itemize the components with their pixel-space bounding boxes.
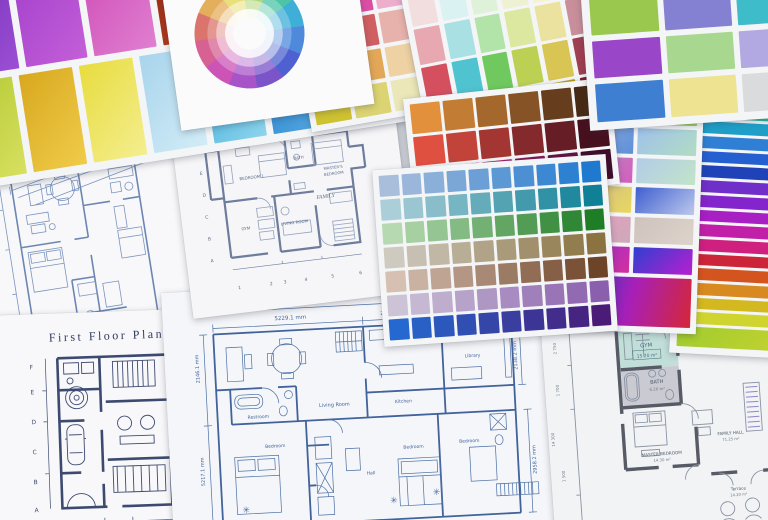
swatch-cell: [542, 40, 574, 81]
swatch-cell: [595, 80, 665, 122]
svg-text:1 500: 1 500: [561, 470, 567, 482]
svg-text:Bedroom: Bedroom: [403, 444, 424, 451]
svg-text:2138.2 mm: 2138.2 mm: [512, 341, 520, 370]
swatch-cell: [432, 291, 453, 313]
swatch-cell: [406, 245, 427, 267]
svg-text:Hall: Hall: [367, 470, 376, 476]
swatch-cell: [442, 98, 475, 131]
swatch-cell: [454, 290, 475, 312]
swatch-cell: [539, 211, 560, 233]
swatch-cell: [475, 264, 496, 286]
furniture: [225, 322, 539, 520]
swatch-cell: [18, 67, 86, 172]
swatch-cell: [436, 0, 468, 21]
swatch-cell: [515, 189, 536, 211]
swatch-cell: [520, 261, 541, 283]
swatch-cell: [512, 46, 544, 87]
svg-text:2146.1 mm: 2146.1 mm: [194, 354, 202, 383]
swatch-cell: [466, 0, 498, 15]
swatch-cell: [79, 58, 147, 163]
piano-strings: [745, 386, 760, 427]
swatch-cell: [411, 317, 432, 339]
swatch-cell: [665, 31, 735, 73]
swatch-cell: [410, 101, 443, 134]
swatch-cell: [518, 237, 539, 259]
svg-text:D: D: [31, 419, 36, 426]
solid-grid: [589, 0, 768, 122]
solid-grid-card-topright: [580, 0, 768, 131]
swatch-cell: [404, 221, 425, 243]
swatch-cell: [481, 51, 513, 92]
svg-text:5217.1 mm: 5217.1 mm: [200, 457, 208, 486]
furniture: [62, 360, 166, 508]
swatch-cell: [401, 173, 422, 195]
swatch-cell: [536, 164, 557, 186]
svg-text:✳: ✳: [433, 488, 442, 498]
swatch-cell: [635, 188, 695, 216]
swatch-cell: [566, 282, 587, 304]
swatch-cell: [522, 285, 543, 307]
swatch-cell: [474, 13, 506, 54]
swatch-cell: [433, 315, 454, 337]
svg-text:3: 3: [283, 279, 287, 285]
svg-text:5229.1 mm: 5229.1 mm: [274, 315, 306, 323]
svg-text:FAMILY HALL: FAMILY HALL: [717, 429, 744, 436]
svg-text:FAMILY: FAMILY: [315, 193, 336, 201]
dimension-line: [232, 251, 361, 270]
svg-text:B: B: [33, 479, 37, 486]
svg-text:A: A: [34, 507, 39, 514]
swatch-cell: [592, 36, 662, 78]
swatch-cell: [496, 239, 517, 261]
grid-numbers: 1 2 3 4 5 6: [238, 270, 363, 291]
swatch-row: [592, 26, 768, 79]
swatch-cell: [560, 186, 581, 208]
swatch-cell: [492, 191, 513, 213]
swatch-cell: [501, 310, 522, 332]
svg-text:✳: ✳: [390, 496, 399, 506]
swatch-cell: [387, 294, 408, 316]
swatch-cell: [468, 168, 489, 190]
svg-text:14.30 m²: 14.30 m²: [653, 457, 671, 463]
swatch-cell: [739, 26, 768, 68]
swatch-cell: [409, 293, 430, 315]
svg-text:C: C: [32, 449, 36, 456]
svg-text:6: 6: [359, 270, 363, 276]
svg-text:BEDROOM 1: BEDROOM 1: [239, 173, 265, 181]
swatch-cell: [449, 218, 470, 240]
swatch-cell: [499, 286, 520, 308]
svg-text:LIVING ROOM: LIVING ROOM: [281, 218, 309, 226]
swatch-cell: [425, 195, 446, 217]
swatch-cell: [413, 134, 446, 167]
color-wheel-wrap: [187, 0, 311, 96]
swatch-cell: [504, 7, 536, 48]
svg-text:Bedroom: Bedroom: [459, 438, 480, 445]
swatch-cell: [544, 120, 577, 153]
room-labels: GYM 15.20 m² BATH 6.20 m² MASTER BEDROOM…: [544, 330, 751, 520]
svg-text:D: D: [202, 192, 207, 198]
swatch-cell: [427, 219, 448, 241]
svg-text:B: B: [208, 236, 212, 242]
swatch-cell: [491, 167, 512, 189]
swatch-cell: [428, 243, 449, 265]
swatch-cell: [633, 247, 693, 275]
svg-text:BATH: BATH: [293, 154, 304, 160]
swatch-cell: [584, 208, 605, 230]
swatch-cell: [517, 213, 538, 235]
svg-text:F: F: [29, 364, 33, 371]
swatch-cell: [389, 318, 410, 340]
swatch-cell: [523, 309, 544, 331]
swatch-cell: [742, 70, 768, 112]
swatch-cell: [637, 128, 697, 156]
swatch-cell: [662, 0, 732, 30]
swatch-cell: [384, 246, 405, 268]
swatch-cell: [380, 199, 401, 221]
swatch-cell: [561, 210, 582, 232]
swatch-cell: [0, 0, 19, 78]
swatch-cell: [508, 91, 541, 124]
svg-text:14 300: 14 300: [550, 432, 556, 447]
swatch-cell: [406, 0, 438, 26]
plant-symbols: ✳✳✳: [242, 488, 442, 516]
swatch-cell: [736, 0, 768, 25]
swatch-cell: [563, 234, 584, 256]
swatch-cell: [494, 215, 515, 237]
svg-text:2 750: 2 750: [552, 342, 558, 354]
swatch-cell: [565, 258, 586, 280]
svg-text:BATH: BATH: [650, 379, 664, 386]
main-color-grid: [379, 160, 612, 340]
swatch-cell: [544, 283, 565, 305]
swatch-cell: [634, 217, 694, 245]
svg-text:E: E: [30, 389, 34, 396]
svg-text:1: 1: [238, 285, 242, 291]
swatch-cell: [582, 184, 603, 206]
swatch-cell: [479, 127, 512, 160]
swatch-cell: [511, 123, 544, 156]
svg-text:71.25 m²: 71.25 m²: [722, 436, 740, 442]
svg-text:BEDROOM: BEDROOM: [324, 170, 344, 177]
swatch-cell: [408, 269, 429, 291]
swatch-cell: [591, 304, 612, 326]
swatch-cell: [568, 306, 589, 328]
swatch-cell: [587, 256, 608, 278]
photo-floorplans-and-color-swatches: 4753 mm First Floor Plan: [0, 0, 768, 520]
swatch-cell: [382, 222, 403, 244]
svg-text:✳: ✳: [242, 506, 251, 516]
svg-text:Bedroom: Bedroom: [265, 443, 286, 450]
swatch-cell: [586, 232, 607, 254]
swatch-cell: [475, 94, 508, 127]
swatch-cell: [453, 266, 474, 288]
swatch-cell: [451, 242, 472, 264]
swatch-cell: [581, 160, 602, 182]
svg-text:GYM: GYM: [241, 225, 251, 231]
swatch-cell: [413, 24, 445, 65]
swatch-cell: [456, 314, 477, 336]
swatch-cell: [537, 188, 558, 210]
swatch-cell: [478, 312, 499, 334]
swatch-cell: [444, 19, 476, 60]
first-floor-title: First Floor Plan: [49, 327, 165, 345]
swatch-cell: [446, 130, 479, 163]
swatch-cell: [448, 194, 469, 216]
svg-text:14.20 m²: 14.20 m²: [730, 491, 748, 497]
swatch-cell: [497, 263, 518, 285]
main-color-grid-card: [372, 154, 618, 347]
swatch-cell: [477, 288, 498, 310]
swatch-cell: [473, 240, 494, 262]
svg-text:GYM: GYM: [640, 343, 653, 350]
swatch-cell: [668, 75, 738, 117]
swatch-cell: [636, 158, 696, 186]
swatch-cell: [470, 192, 491, 214]
svg-text:Living Room: Living Room: [319, 401, 350, 409]
grid-letters: F E D C B A: [29, 364, 39, 514]
swatch-cell: [589, 0, 659, 35]
swatch-cell: [430, 267, 451, 289]
swatch-cell: [589, 280, 610, 302]
svg-text:Restroom: Restroom: [247, 414, 269, 421]
svg-text:Kitchen: Kitchen: [395, 398, 412, 405]
swatch-cell: [534, 1, 566, 42]
svg-text:4: 4: [304, 277, 308, 283]
swatch-cell: [385, 270, 406, 292]
swatch-cell: [513, 165, 534, 187]
svg-text:C: C: [205, 214, 209, 220]
svg-text:1 700: 1 700: [555, 384, 561, 396]
swatch-cell: [472, 216, 493, 238]
swatch-cell: [558, 162, 579, 184]
swatch-cell: [423, 171, 444, 193]
swatch-cell: [542, 259, 563, 281]
svg-text:Library: Library: [465, 353, 481, 360]
svg-text:E: E: [200, 171, 204, 177]
swatch-cell: [446, 170, 467, 192]
svg-text:A: A: [210, 258, 215, 264]
swatch-cell: [546, 307, 567, 329]
svg-text:2958.2 mm: 2958.2 mm: [531, 445, 539, 474]
swatch-row: [595, 70, 768, 123]
svg-text:2: 2: [270, 281, 274, 287]
color-wheel: [187, 0, 311, 96]
swatch-cell: [379, 175, 400, 197]
svg-text:5: 5: [331, 273, 335, 279]
swatch-cell: [541, 88, 574, 121]
swatch-cell: [541, 235, 562, 257]
swatch-cell: [403, 197, 424, 219]
